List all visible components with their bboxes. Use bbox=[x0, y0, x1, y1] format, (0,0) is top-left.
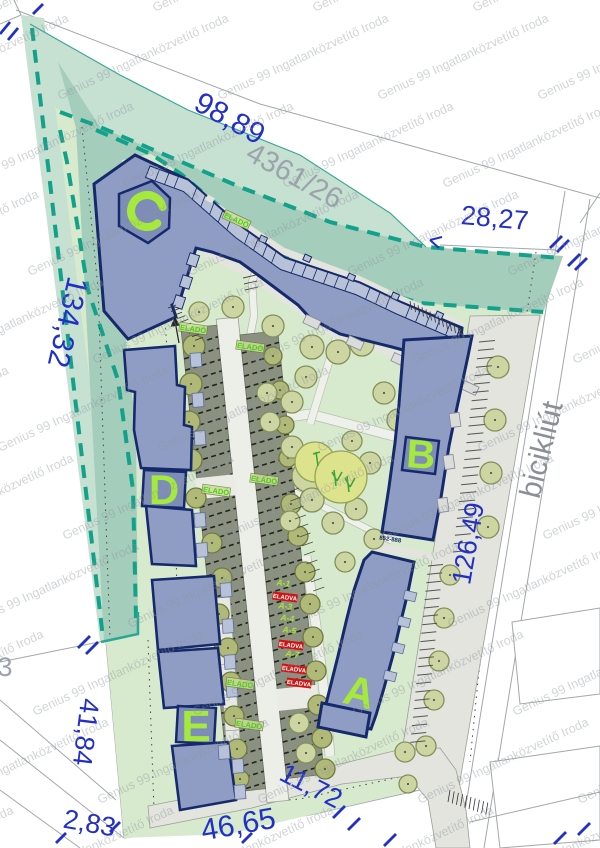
svg-text:A-1: A-1 bbox=[275, 577, 291, 589]
svg-text:B: B bbox=[405, 432, 437, 478]
